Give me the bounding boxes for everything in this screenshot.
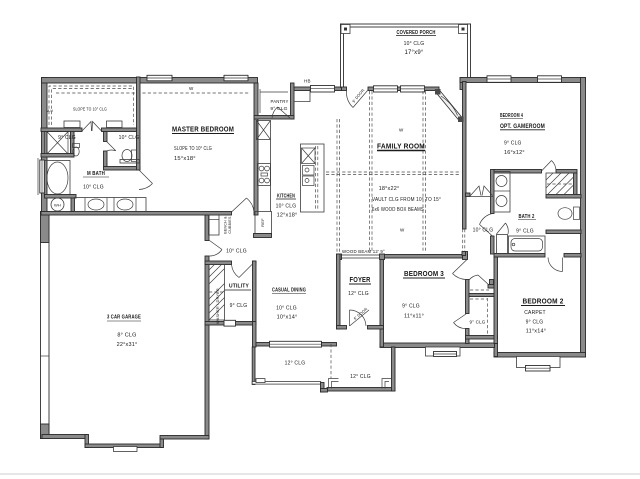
svg-text:10°x14°: 10°x14° [277, 315, 298, 321]
svg-text:16°x12°: 16°x12° [504, 150, 525, 156]
svg-text:15°x18°: 15°x18° [174, 156, 196, 162]
svg-text:10° CLG: 10° CLG [276, 306, 297, 312]
svg-text:17°x9°: 17°x9° [404, 50, 423, 56]
svg-text:W: W [399, 128, 404, 133]
svg-text:22°x31°: 22°x31° [117, 342, 138, 348]
svg-text:SLOPE TO 10° CLG: SLOPE TO 10° CLG [174, 146, 212, 152]
svg-text:10° CLG: 10° CLG [119, 135, 140, 141]
svg-text:KITCHEN: KITCHEN [277, 194, 295, 200]
svg-text:10° CLG: 10° CLG [83, 185, 104, 191]
svg-text:9° CLG: 9° CLG [526, 320, 544, 326]
svg-text:10° CLG: 10° CLG [404, 41, 425, 47]
svg-text:18°x22°: 18°x22° [379, 186, 400, 192]
svg-text:HB: HB [304, 79, 311, 84]
svg-text:9° CLG: 9° CLG [504, 141, 522, 147]
svg-text:9° CLG: 9° CLG [58, 135, 76, 141]
svg-text:11°x14°: 11°x14° [526, 329, 546, 335]
svg-text:9° CLG: 9° CLG [230, 303, 248, 309]
svg-text:FOYER: FOYER [350, 277, 371, 284]
svg-text:12°x18°: 12°x18° [277, 213, 298, 219]
svg-text:BENCH &: BENCH & [224, 216, 228, 234]
svg-text:BEDROOM 3: BEDROOM 3 [404, 271, 444, 278]
svg-text:12° CLG: 12° CLG [285, 361, 306, 367]
svg-text:9° CLG: 9° CLG [270, 106, 287, 112]
svg-text:10° CLG: 10° CLG [226, 249, 247, 255]
svg-text:BATH 2: BATH 2 [519, 214, 535, 220]
svg-text:10° CLG: 10° CLG [473, 228, 494, 234]
svg-text:10° CLG: 10° CLG [276, 204, 297, 210]
svg-text:COVERED PORCH: COVERED PORCH [397, 30, 436, 36]
svg-text:SLOPE TO 10° CLG: SLOPE TO 10° CLG [73, 107, 107, 113]
svg-text:UTILITY: UTILITY [229, 284, 249, 290]
svg-text:12° CLG: 12° CLG [348, 291, 369, 297]
svg-text:BEDROOM 4: BEDROOM 4 [500, 113, 523, 119]
svg-text:WH: WH [54, 203, 61, 208]
svg-text:3 CAR GARAGE: 3 CAR GARAGE [107, 315, 141, 321]
svg-text:W: W [189, 86, 194, 91]
svg-text:BEDROOM 2: BEDROOM 2 [523, 299, 564, 306]
svg-text:MASTER BEDROOM: MASTER BEDROOM [172, 127, 234, 134]
svg-text:M.H: M.H [47, 109, 54, 113]
svg-text:12° CLG: 12° CLG [350, 374, 371, 380]
svg-text:11°x11°: 11°x11° [404, 314, 424, 320]
svg-text:PANTRY: PANTRY [271, 99, 289, 105]
svg-text:8° CLG: 8° CLG [117, 333, 136, 339]
svg-text:CARPET: CARPET [524, 310, 545, 316]
svg-text:M BATH: M BATH [87, 171, 105, 177]
svg-text:6x6 WOOD BOX BEAMS: 6x6 WOOD BOX BEAMS [372, 207, 424, 213]
svg-text:CASUAL DINING: CASUAL DINING [272, 288, 306, 294]
svg-text:9° CLG: 9° CLG [402, 304, 420, 310]
svg-text:VAULT CLG FROM 10° TO 15°: VAULT CLG FROM 10° TO 15° [372, 197, 441, 203]
svg-text:WASHER / DRYER: WASHER / DRYER [216, 288, 220, 324]
svg-text:9° CLG: 9° CLG [516, 229, 534, 235]
svg-text:W: W [400, 228, 405, 233]
svg-text:CUBBIES: CUBBIES [228, 216, 232, 234]
svg-text:OPT. GAMEROOM: OPT. GAMEROOM [500, 123, 545, 130]
svg-text:FAMILY ROOM: FAMILY ROOM [377, 144, 425, 151]
svg-text:WOOD BEAM 12' 9°: WOOD BEAM 12' 9° [342, 249, 385, 254]
svg-text:9° CLG: 9° CLG [469, 320, 485, 325]
svg-text:REF: REF [260, 218, 265, 227]
